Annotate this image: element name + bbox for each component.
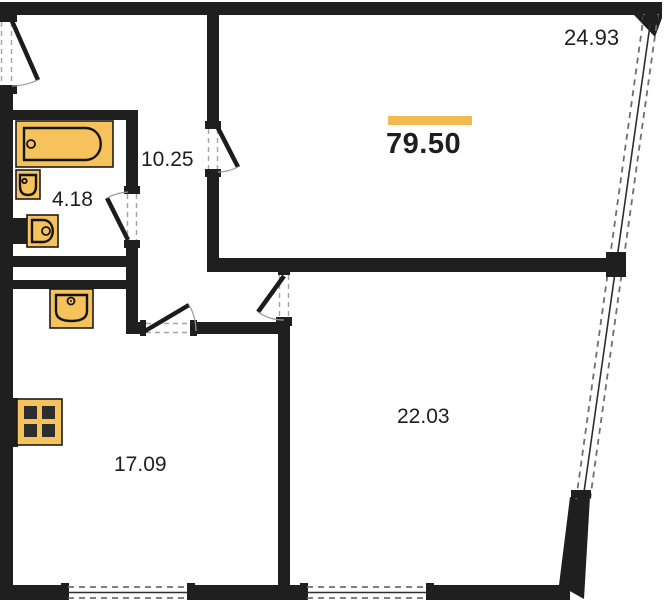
- window-cap: [300, 583, 308, 600]
- area-label-room-top: 24.93: [564, 27, 619, 49]
- bathroom-door: [107, 192, 137, 240]
- wall-room-bottom: [207, 258, 612, 272]
- window-bottom-left: [61, 583, 195, 600]
- wall-room22-left: [278, 326, 290, 585]
- hand-basin-icon: [16, 170, 40, 199]
- wall-top: [0, 2, 662, 15]
- area-label-room-bottom-left: 17.09: [114, 454, 167, 475]
- area-label-bathroom: 4.18: [52, 189, 93, 210]
- room22-door: [258, 275, 289, 320]
- wall-hall-room-lower: [207, 177, 219, 272]
- total-area-label: 79.50: [386, 130, 461, 159]
- wall-room22-top: [278, 267, 290, 275]
- wall-bathroom-right-upper: [126, 110, 138, 186]
- wall-kitchen-left: [126, 322, 142, 334]
- hall-door-jamb-bottom: [205, 169, 221, 177]
- stove-burner: [24, 424, 37, 437]
- window-bottom-right: [300, 583, 434, 600]
- wall-slanted-bottom-right: [559, 497, 590, 599]
- toilet-icon: [13, 215, 58, 247]
- window-cap: [61, 583, 69, 600]
- entrance-door-leaf: [12, 21, 38, 80]
- window-cap: [426, 583, 434, 600]
- wall-shaft-top: [13, 256, 126, 267]
- hall-to-room-door: [209, 128, 239, 172]
- stove-icon: [13, 398, 62, 447]
- floor-plan-drawing: [0, 0, 664, 600]
- wall-kitchen-right: [197, 322, 283, 334]
- kitchen-sink-icon: [50, 289, 93, 328]
- interior-walls: [13, 13, 612, 585]
- room22-door-jamb-bottom: [276, 317, 292, 326]
- bathroom-door-jamb-top: [124, 186, 140, 194]
- bathtub-icon: [16, 121, 113, 167]
- door-leaf: [218, 128, 238, 167]
- door-leaf: [107, 198, 128, 240]
- area-label-room-bottom-right: 22.03: [397, 406, 450, 427]
- kitchen-door-jamb-left: [140, 320, 146, 336]
- window-cap: [643, 15, 658, 23]
- kitchen-door: [145, 305, 196, 333]
- stove-burner: [24, 406, 37, 419]
- stove-body: [17, 399, 62, 445]
- door-leaf: [145, 305, 189, 331]
- exterior-walls: [0, 2, 662, 600]
- stove-burner: [42, 406, 55, 419]
- window-slanted-right: [571, 14, 658, 500]
- toilet-cistern: [13, 218, 27, 244]
- entrance-door-jamb-top: [0, 14, 17, 22]
- bathroom-door-jamb-bottom: [124, 240, 140, 248]
- entrance-door: [2, 21, 39, 86]
- wall-hall-room-upper: [207, 13, 219, 121]
- stove-burner: [42, 424, 55, 437]
- wall-bottom-middle: [188, 585, 307, 600]
- window-cap: [571, 490, 591, 498]
- wall-bottom-right: [427, 585, 570, 600]
- total-area-highlight-bar: [388, 116, 472, 125]
- wall-bottom-left: [0, 585, 68, 600]
- wall-shaft-bottom: [13, 280, 126, 289]
- area-label-hallway: 10.25: [141, 149, 194, 170]
- wall-bathroom-top: [13, 110, 138, 120]
- wall-bathroom-right-lower: [126, 248, 138, 334]
- wall-left-lower: [0, 90, 13, 600]
- floor-plan: 79.50 24.93 10.25 4.18 22.03 17.09: [0, 0, 664, 600]
- window-cap: [187, 583, 195, 600]
- kitchen-sink-faucet-dot: [70, 300, 72, 302]
